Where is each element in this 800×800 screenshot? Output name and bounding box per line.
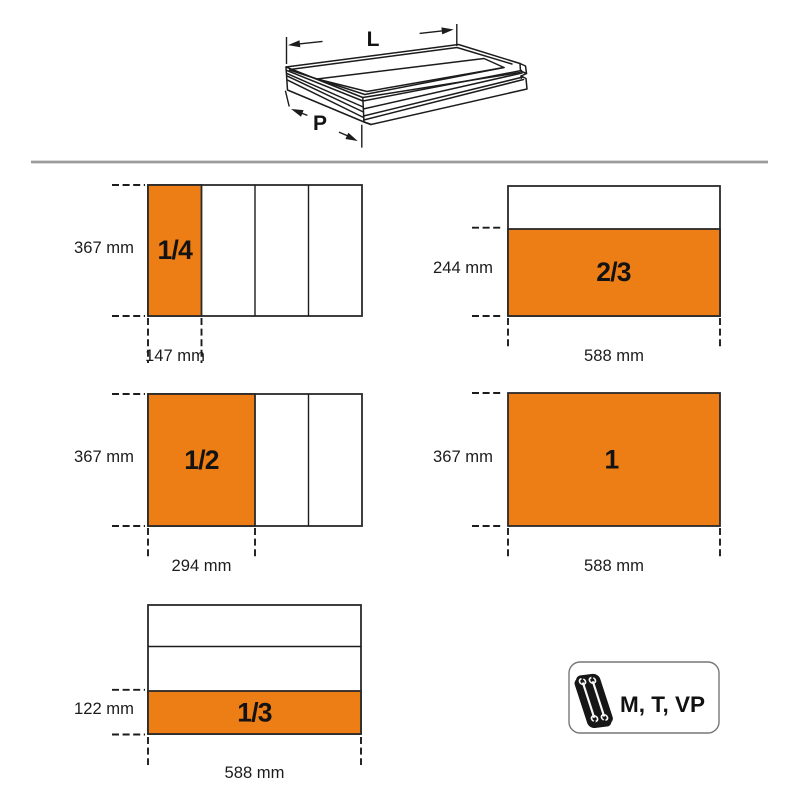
svg-text:367 mm: 367 mm bbox=[433, 447, 493, 466]
svg-text:1/3: 1/3 bbox=[237, 698, 272, 728]
svg-text:367 mm: 367 mm bbox=[74, 238, 134, 257]
svg-text:2/3: 2/3 bbox=[596, 257, 631, 287]
svg-text:1: 1 bbox=[605, 445, 619, 475]
svg-text:294 mm: 294 mm bbox=[172, 556, 232, 575]
svg-text:367 mm: 367 mm bbox=[74, 447, 134, 466]
svg-text:L: L bbox=[367, 28, 380, 51]
svg-text:1/4: 1/4 bbox=[158, 235, 194, 265]
svg-text:147 mm: 147 mm bbox=[145, 346, 205, 365]
svg-text:588 mm: 588 mm bbox=[584, 556, 644, 575]
svg-text:588 mm: 588 mm bbox=[225, 763, 285, 782]
svg-text:244 mm: 244 mm bbox=[433, 258, 493, 277]
svg-text:1/2: 1/2 bbox=[184, 445, 219, 475]
svg-text:588 mm: 588 mm bbox=[584, 346, 644, 365]
svg-text:122 mm: 122 mm bbox=[74, 699, 134, 718]
svg-text:P: P bbox=[313, 112, 327, 135]
svg-text:M, T, VP: M, T, VP bbox=[620, 692, 705, 717]
